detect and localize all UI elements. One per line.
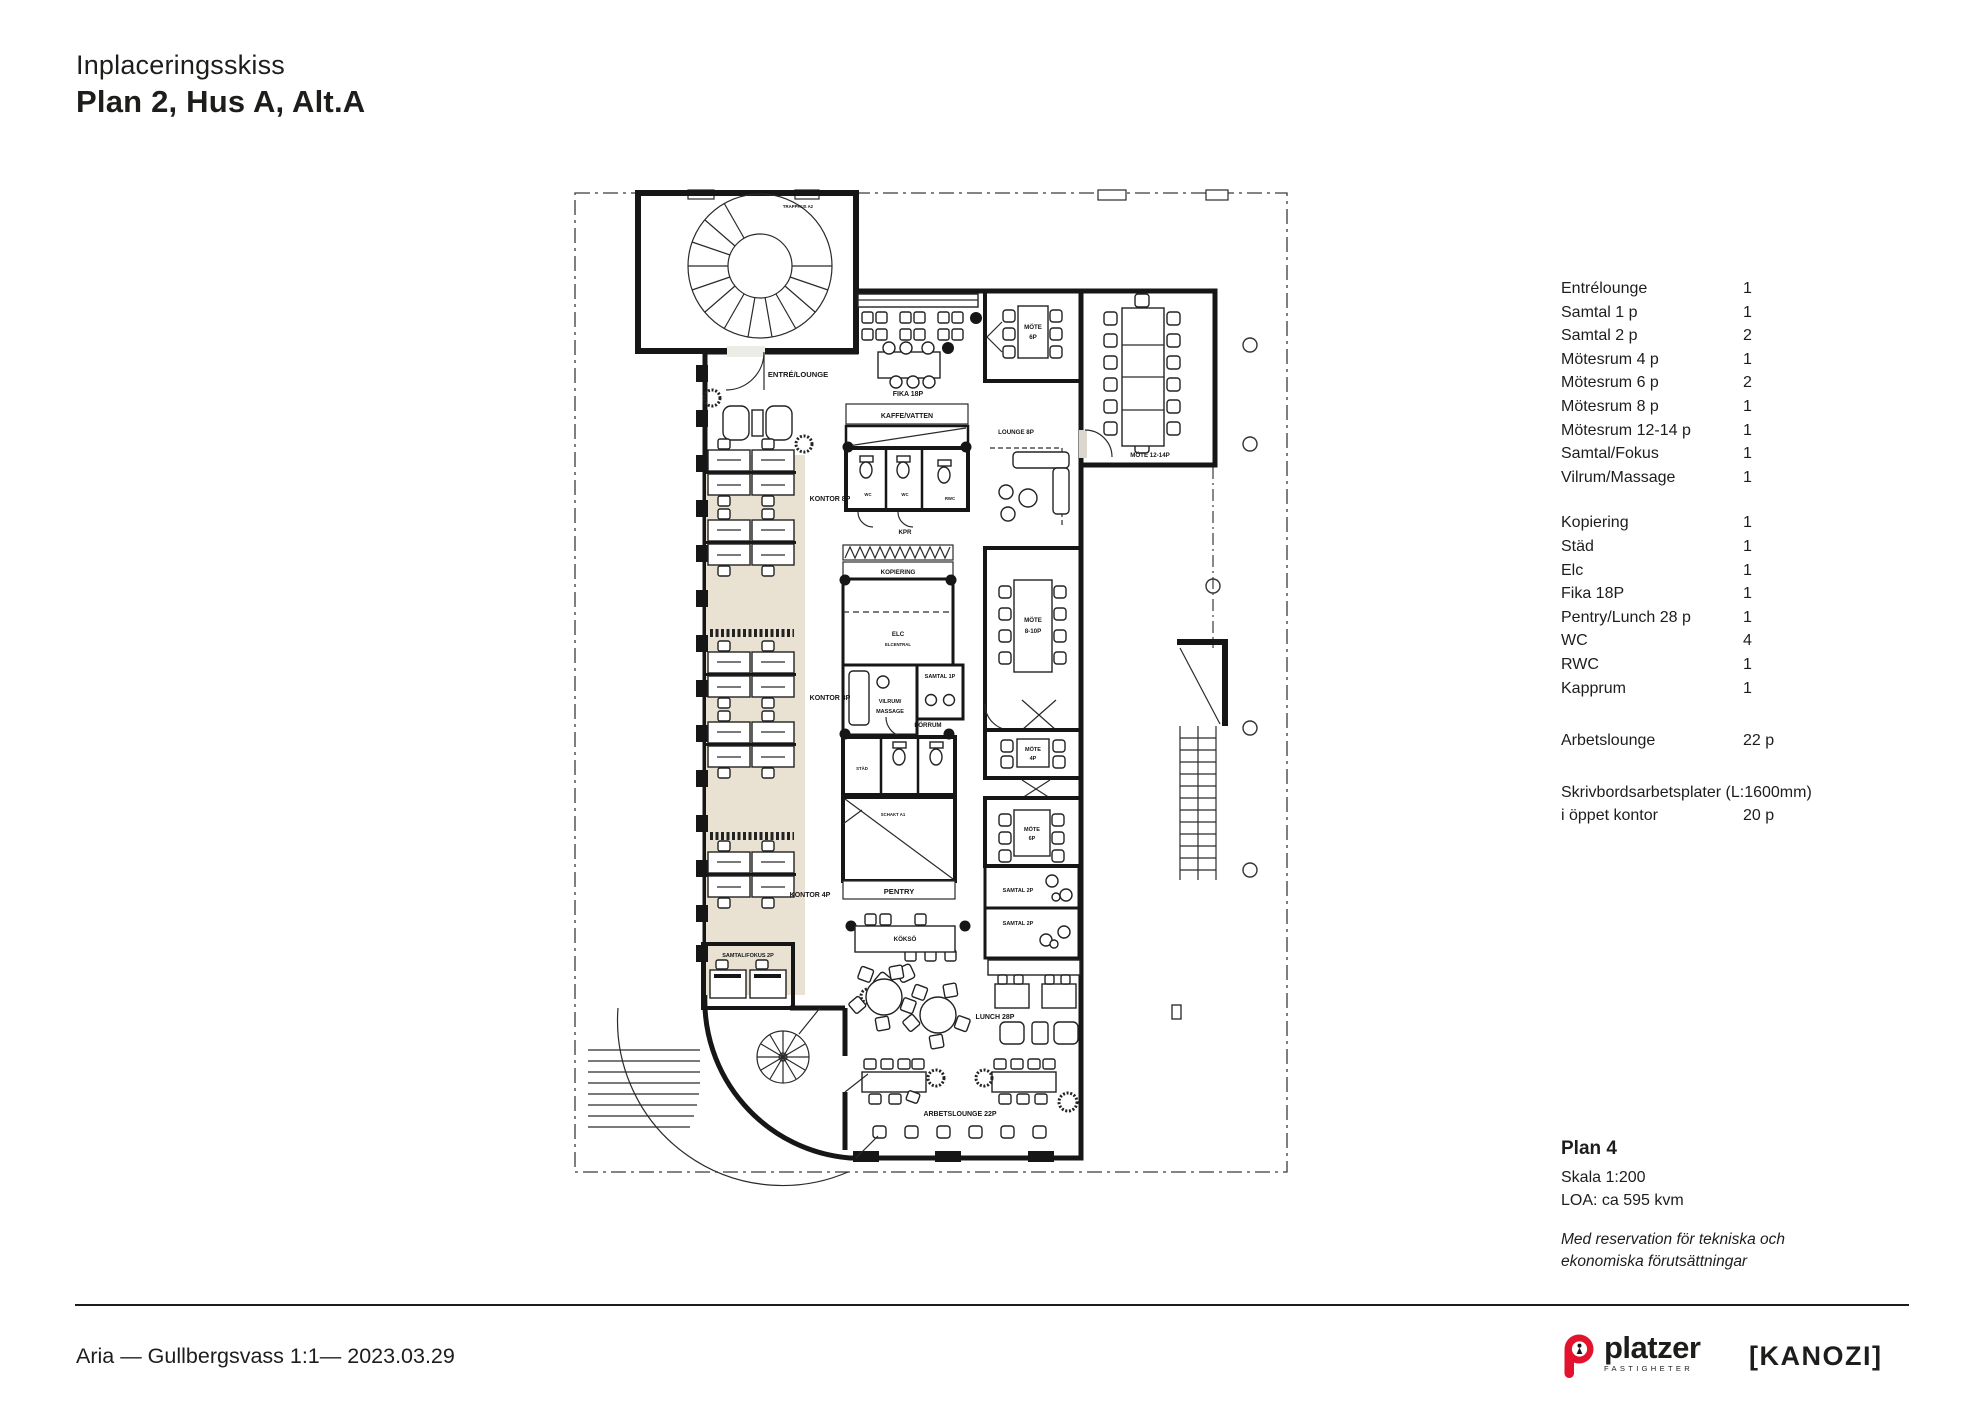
room-mote-6p-mid: MÖTE 6P (985, 798, 1081, 866)
label-arbetslounge: ARBETSLOUNGE 22P (923, 1111, 996, 1118)
label-elc: ELC (892, 631, 905, 638)
legend-label: Pentry/Lunch 28 p (1561, 606, 1743, 630)
legend-value: 1 (1743, 301, 1812, 325)
legend-label: RWC (1561, 653, 1743, 677)
legend-value: 1 (1743, 653, 1812, 677)
legend-group-lounge: Arbetslounge22 p (1561, 729, 1812, 753)
legend-row: Entrélounge1 (1561, 277, 1812, 301)
legend-row: Mötesrum 6 p2 (1561, 371, 1812, 395)
legend-row: Samtal/Fokus1 (1561, 442, 1812, 466)
label-kontor-4p: KONTOR 4P (790, 892, 831, 899)
label-mote-810: MÖTE (1024, 617, 1042, 624)
legend-value: 1 (1743, 559, 1812, 583)
page: { "header": { "subtitle": "Inplaceringss… (0, 0, 1984, 1403)
legend-value: 1 (1743, 466, 1812, 490)
room-vilrum-massage: VILRUM/ MASSAGE (843, 665, 917, 735)
fika-area: FIKA 18P (858, 294, 982, 398)
legend-row: Vilrum/Massage1 (1561, 466, 1812, 490)
legend-group-service: Kopiering1 Städ1 Elc1 Fika 18P1 Pentry/L… (1561, 511, 1812, 700)
label-kontor-8p-b: KONTOR 8P (810, 695, 851, 702)
label-mote-810-2: 8-10P (1025, 628, 1042, 635)
junction-dots (942, 342, 954, 354)
legend-row: Elc1 (1561, 559, 1812, 583)
legend-row: Kapprum1 (1561, 677, 1812, 701)
legend-value: 20 p (1743, 804, 1812, 828)
exterior-stair-right (1177, 642, 1225, 880)
label-kokso: KÖKSÖ (894, 936, 917, 943)
label-vilrum-2: MASSAGE (876, 709, 904, 715)
legend-label: i öppet kontor (1561, 804, 1743, 828)
legend-row: Mötesrum 4 p1 (1561, 348, 1812, 372)
disclaimer-line-2: ekonomiska förutsättningar (1561, 1251, 1785, 1273)
plan-info-scale: Skala 1:200 (1561, 1167, 1785, 1190)
room-samtal-2p-b: SAMTAL 2P (985, 908, 1079, 958)
page-subtitle: Inplaceringsskiss (76, 50, 285, 81)
legend-row: WC4 (1561, 629, 1812, 653)
wc-block-2: STÄD (840, 729, 956, 796)
label-wc-1: WC (864, 492, 871, 497)
legend-row: Städ1 (1561, 535, 1812, 559)
room-samtal-1p: SAMTAL 1P (917, 665, 963, 719)
label-elcentral: ELCENTRAL (885, 642, 911, 647)
label-kaffe-vatten: KAFFE/VATTEN (881, 413, 933, 420)
room-samtal-2p-a: SAMTAL 2P (985, 866, 1079, 908)
legend-row: Fika 18P1 (1561, 582, 1812, 606)
legend-value: 1 (1743, 277, 1812, 301)
label-mote-6p-mid: MÖTE (1024, 826, 1040, 833)
label-samtal-1p: SAMTAL 1P (925, 674, 956, 680)
room-mote-12-14p: MÖTE 12-14P (1079, 291, 1215, 465)
label-mote-4p: MÖTE (1025, 746, 1041, 753)
legend-row: Samtal 2 p2 (1561, 324, 1812, 348)
label-forrum: FÖRRUM (914, 722, 941, 729)
label-mote-12-14p: MÖTE 12-14P (1130, 452, 1170, 459)
legend-label: Entrélounge (1561, 277, 1743, 301)
label-mote-6p-top-2: 6P (1029, 334, 1037, 341)
legend-label: Samtal 2 p (1561, 324, 1743, 348)
legend-label: Samtal/Fokus (1561, 442, 1743, 466)
label-samtal-2p-a: SAMTAL 2P (1003, 888, 1034, 894)
room-mote-6p-top: MÖTE 6P (985, 291, 1081, 381)
pentry-block: SCHAKT A1 PENTRY (843, 797, 955, 899)
legend-value: 1 (1743, 677, 1812, 701)
legend-value: 1 (1743, 442, 1812, 466)
legend-label: WC (1561, 629, 1743, 653)
label-mote-6p-top: MÖTE (1024, 324, 1042, 331)
wc-block-1: WC WC RWC KPR (846, 448, 968, 536)
footer-text: Aria — Gullbergsvass 1:1— 2023.03.29 (76, 1344, 455, 1369)
legend-label: Skrivbordsarbetsplater (L:1600mm) (1561, 784, 1812, 801)
platzer-p-icon (1560, 1334, 1596, 1385)
legend-value: 1 (1743, 606, 1812, 630)
floor-plan: TRAPPHUS A2 FIKA (560, 180, 1320, 1192)
legend-row: Samtal 1 p1 (1561, 301, 1812, 325)
label-schakt: SCHAKT A1 (881, 812, 906, 817)
room-mote-8-10p: MÖTE 8-10P (985, 548, 1081, 730)
legend-value: 1 (1743, 419, 1812, 443)
plan-info: Plan 4 Skala 1:200 LOA: ca 595 kvm Med r… (1561, 1138, 1785, 1273)
label-wc-2: WC (901, 492, 908, 497)
legend-value: 1 (1743, 511, 1812, 535)
label-kpr: KPR (898, 529, 912, 536)
disclaimer-line-1: Med reservation för tekniska och (1561, 1229, 1785, 1251)
label-mote-4p-2: 4P (1030, 756, 1037, 762)
legend-row: Mötesrum 8 p1 (1561, 395, 1812, 419)
legend-label: Fika 18P (1561, 582, 1743, 606)
label-mote-6p-mid-2: 6P (1029, 836, 1036, 842)
legend-row: Mötesrum 12-14 p1 (1561, 419, 1812, 443)
stairwell-top: TRAPPHUS A2 (638, 193, 856, 351)
legend-row: Pentry/Lunch 28 p1 (1561, 606, 1812, 630)
kanozi-logo: [KANOZI] (1749, 1341, 1882, 1372)
platzer-logo: platzer FASTIGHETER (1560, 1334, 1700, 1385)
label-pentry: PENTRY (884, 887, 915, 896)
legend-value: 1 (1743, 395, 1812, 419)
legend-group-desks: Skrivbordsarbetsplater (L:1600mm) i öppe… (1561, 781, 1812, 828)
legend-label: Samtal 1 p (1561, 301, 1743, 325)
legend-value: 1 (1743, 535, 1812, 559)
legend-value: 22 p (1743, 729, 1812, 753)
legend-label: Mötesrum 12-14 p (1561, 419, 1743, 443)
label-stad: STÄD (856, 766, 868, 771)
lounge-8p-area: LOUNGE 8P (990, 429, 1069, 525)
legend-row: RWC1 (1561, 653, 1812, 677)
legend-value: 1 (1743, 348, 1812, 372)
label-lunch: LUNCH 28P (976, 1014, 1015, 1021)
legend-row: Skrivbordsarbetsplater (L:1600mm) (1561, 781, 1812, 805)
legend-label: Mötesrum 6 p (1561, 371, 1743, 395)
label-samtal-2p-b: SAMTAL 2P (1003, 921, 1034, 927)
label-vilrum-1: VILRUM/ (879, 699, 902, 705)
legend-value: 2 (1743, 324, 1812, 348)
room-mote-4p: MÖTE 4P (985, 730, 1081, 798)
page-title: Plan 2, Hus A, Alt.A (76, 84, 365, 120)
legend: Entrélounge1 Samtal 1 p1 Samtal 2 p2 Möt… (1561, 277, 1812, 828)
kaffe-vatten: KAFFE/VATTEN (843, 404, 972, 453)
stairwell-bottom (588, 1008, 878, 1186)
legend-row: i öppet kontor20 p (1561, 804, 1812, 828)
plan-info-area: LOA: ca 595 kvm (1561, 1190, 1785, 1213)
platzer-wordmark: platzer FASTIGHETER (1604, 1334, 1700, 1373)
kapprum-kopiering: KOPIERING ELC ELCENTRAL (840, 545, 957, 665)
legend-value: 2 (1743, 371, 1812, 395)
legend-value: 4 (1743, 629, 1812, 653)
legend-row: Kopiering1 (1561, 511, 1812, 535)
label-rwc: RWC (945, 496, 955, 501)
arbetslounge-area: ARBETSLOUNGE 22P (862, 1059, 1077, 1138)
legend-label: Mötesrum 8 p (1561, 395, 1743, 419)
label-kopiering: KOPIERING (881, 569, 916, 576)
legend-label: Vilrum/Massage (1561, 466, 1743, 490)
plan-info-disclaimer: Med reservation för tekniska och ekonomi… (1561, 1229, 1785, 1273)
footer-divider (75, 1304, 1909, 1306)
label-entre-lounge: ENTRÉ/LOUNGE (768, 370, 828, 379)
legend-label: Arbetslounge (1561, 729, 1743, 753)
legend-label: Städ (1561, 535, 1743, 559)
platzer-sub: FASTIGHETER (1604, 1364, 1700, 1373)
label-trapphus: TRAPPHUS A2 (783, 204, 814, 209)
legend-group-rooms: Entrélounge1 Samtal 1 p1 Samtal 2 p2 Möt… (1561, 277, 1812, 489)
platzer-word: platzer (1604, 1334, 1700, 1362)
label-samtal-fokus: SAMTAL/FOKUS 2P (722, 953, 774, 959)
legend-label: Mötesrum 4 p (1561, 348, 1743, 372)
legend-value: 1 (1743, 582, 1812, 606)
legend-row: Arbetslounge22 p (1561, 729, 1812, 753)
label-fika: FIKA 18P (893, 391, 924, 398)
label-kontor-8p-a: KONTOR 8P (810, 496, 851, 503)
entre-lounge-area: ENTRÉ/LOUNGE (704, 346, 828, 452)
plan-info-title: Plan 4 (1561, 1138, 1785, 1160)
label-lounge-8p: LOUNGE 8P (998, 429, 1034, 436)
legend-label: Kopiering (1561, 511, 1743, 535)
legend-label: Kapprum (1561, 677, 1743, 701)
legend-label: Elc (1561, 559, 1743, 583)
